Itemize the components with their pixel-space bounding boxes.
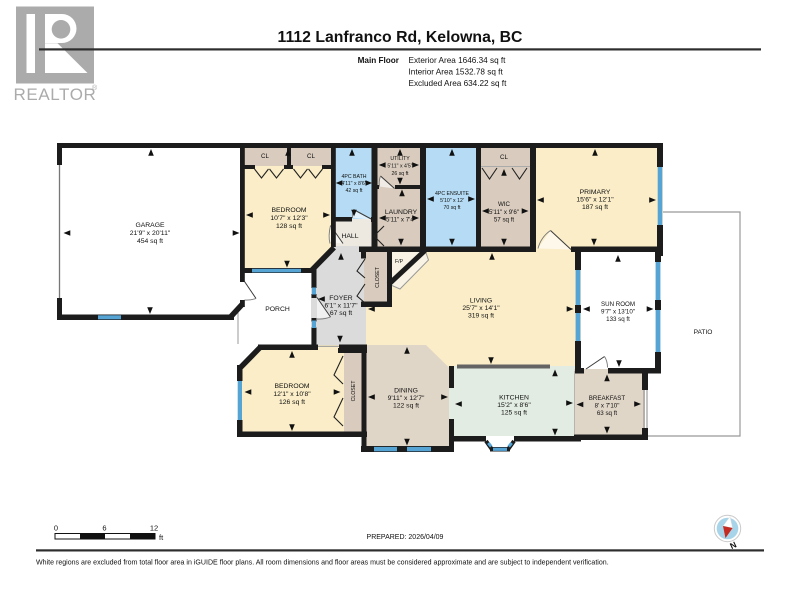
- svg-text:DINING: DINING: [394, 388, 418, 395]
- svg-text:F/P: F/P: [395, 259, 404, 265]
- svg-text:5'11" x 7'4": 5'11" x 7'4": [386, 217, 416, 224]
- svg-text:9'7" x 13'10": 9'7" x 13'10": [601, 309, 635, 316]
- svg-text:187 sq ft: 187 sq ft: [582, 204, 608, 211]
- svg-text:BEDROOM: BEDROOM: [271, 207, 306, 214]
- svg-text:133 sq ft: 133 sq ft: [606, 316, 630, 323]
- svg-text:BEDROOM: BEDROOM: [274, 383, 309, 390]
- svg-text:125 sq ft: 125 sq ft: [501, 410, 527, 417]
- svg-text:FOYER: FOYER: [329, 295, 353, 302]
- svg-text:4PC BATH: 4PC BATH: [342, 174, 367, 180]
- svg-text:63 sq ft: 63 sq ft: [597, 410, 618, 417]
- svg-text:8' x 7'10": 8' x 7'10": [595, 403, 620, 410]
- svg-text:15'2" x 8'6": 15'2" x 8'6": [497, 402, 531, 409]
- svg-text:9'11" x 12'7": 9'11" x 12'7": [388, 395, 425, 402]
- svg-text:4'11" x 8'6": 4'11" x 8'6": [341, 181, 366, 187]
- svg-text:122 sq ft: 122 sq ft: [393, 403, 419, 410]
- svg-text:KITCHEN: KITCHEN: [499, 395, 529, 402]
- svg-text:PORCH: PORCH: [265, 306, 290, 313]
- svg-text:SUN ROOM: SUN ROOM: [601, 301, 635, 308]
- svg-text:®: ®: [92, 84, 98, 92]
- svg-text:White regions are excluded fro: White regions are excluded from total fl…: [36, 560, 609, 567]
- svg-text:UTILITY: UTILITY: [390, 156, 410, 162]
- svg-text:Main Floor: Main Floor: [358, 56, 400, 65]
- svg-text:319 sq ft: 319 sq ft: [468, 313, 494, 320]
- svg-text:10'7" x 12'3": 10'7" x 12'3": [270, 215, 308, 222]
- svg-text:PRIMARY: PRIMARY: [580, 189, 611, 196]
- svg-text:BREAKFAST: BREAKFAST: [589, 395, 626, 402]
- svg-text:15'6" x 12'1": 15'6" x 12'1": [576, 197, 614, 204]
- svg-text:5'10" x 12': 5'10" x 12': [440, 198, 464, 204]
- svg-text:25'7" x 14'1": 25'7" x 14'1": [462, 305, 500, 312]
- svg-text:5'11" x 4'5": 5'11" x 4'5": [387, 164, 412, 170]
- svg-text:6'1" x 11'7": 6'1" x 11'7": [325, 303, 359, 310]
- svg-text:REALTOR: REALTOR: [14, 85, 97, 104]
- svg-text:0: 0: [54, 524, 58, 533]
- svg-text:12: 12: [150, 524, 158, 533]
- svg-text:CL: CL: [307, 153, 315, 160]
- svg-text:CL: CL: [261, 153, 269, 160]
- svg-text:PATIO: PATIO: [694, 329, 713, 336]
- svg-text:LAUNDRY: LAUNDRY: [385, 209, 418, 216]
- svg-text:70 sq ft: 70 sq ft: [443, 205, 461, 211]
- svg-text:21'9" x 20'11": 21'9" x 20'11": [130, 230, 171, 237]
- svg-text:CL: CL: [500, 154, 508, 161]
- svg-text:126 sq ft: 126 sq ft: [279, 399, 305, 406]
- svg-text:PREPARED: 2026/04/09: PREPARED: 2026/04/09: [367, 534, 444, 541]
- svg-text:LIVING: LIVING: [470, 298, 492, 305]
- svg-text:5'11" x 9'6": 5'11" x 9'6": [489, 209, 519, 216]
- svg-text:6: 6: [102, 524, 106, 533]
- svg-text:26 sq ft: 26 sq ft: [391, 171, 409, 177]
- svg-text:128 sq ft: 128 sq ft: [276, 223, 302, 230]
- svg-text:67 sq ft: 67 sq ft: [330, 310, 352, 317]
- svg-text:WIC: WIC: [498, 201, 511, 208]
- svg-text:Interior Area 1532.78 sq ft: Interior Area 1532.78 sq ft: [409, 68, 504, 77]
- svg-text:12'1" x 10'8": 12'1" x 10'8": [273, 391, 311, 398]
- svg-text:1112 Lanfranco Rd, Kelowna, BC: 1112 Lanfranco Rd, Kelowna, BC: [278, 29, 523, 46]
- svg-text:454 sq ft: 454 sq ft: [137, 238, 163, 245]
- svg-text:Exterior Area 1646.34 sq ft: Exterior Area 1646.34 sq ft: [409, 56, 507, 65]
- svg-text:CLOSET: CLOSET: [351, 380, 357, 402]
- svg-text:CLOSET: CLOSET: [375, 266, 381, 288]
- svg-text:4PC ENSUITE: 4PC ENSUITE: [435, 191, 470, 197]
- svg-text:57 sq ft: 57 sq ft: [494, 217, 515, 224]
- svg-text:HALL: HALL: [341, 233, 358, 240]
- svg-text:GARAGE: GARAGE: [135, 222, 165, 229]
- svg-text:Excluded Area 634.22 sq ft: Excluded Area 634.22 sq ft: [409, 79, 508, 88]
- svg-text:42 sq ft: 42 sq ft: [345, 188, 363, 194]
